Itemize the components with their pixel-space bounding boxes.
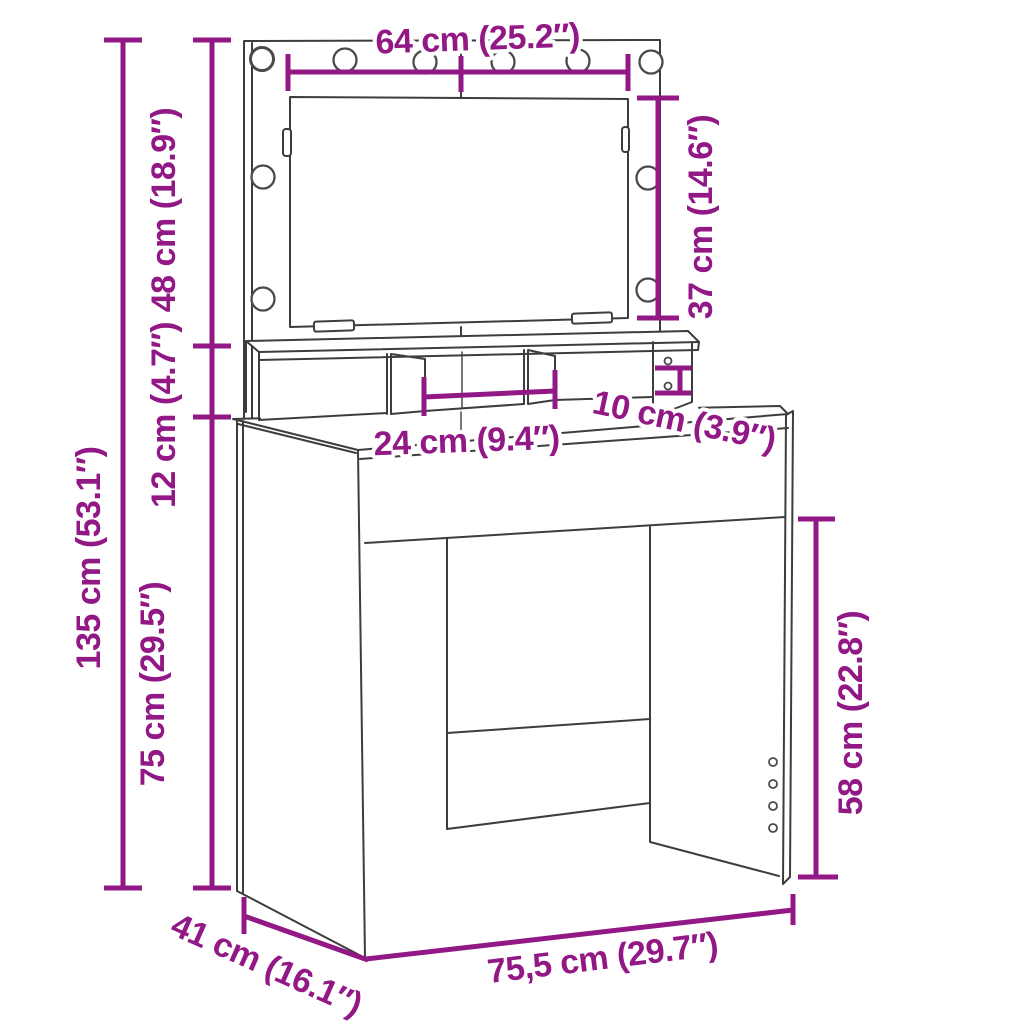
dim-compartment-width-label: 24 cm (9.4″) (373, 419, 560, 463)
shelf-top-board (246, 331, 699, 352)
dim-total-width-label: 75,5 cm (29.7″) (485, 925, 720, 991)
light-bulb-icon (251, 48, 274, 71)
dim-legroom-height-label: 58 cm (22.8″) (832, 611, 870, 815)
cam-hole-icon (769, 802, 777, 810)
leg-panel-holes (769, 758, 777, 832)
light-bulb-icon (252, 166, 275, 189)
dimension-drawing: 64 cm (25.2″) 37 cm (14.6″) 135 cm (53.1… (0, 0, 1024, 1024)
cam-hole-icon (665, 383, 672, 390)
shelf-cam-holes (665, 358, 672, 390)
table-right-panel (783, 411, 793, 884)
shelf-divider-left (387, 354, 425, 414)
dim-table-height-label: 75 cm (29.5″) (134, 582, 172, 786)
dim-mirror-glass-height-label: 37 cm (14.6″) (682, 115, 720, 319)
dim-niche-height-line (655, 368, 691, 393)
table-back-crossbar (447, 719, 650, 829)
cam-hole-icon (665, 358, 672, 365)
dim-mirror-panel-height-label: 48 cm (18.9″) (145, 108, 183, 312)
shelf-divider-right (524, 350, 555, 404)
mirror-clip-right (622, 127, 629, 152)
mirror-clip-bottom-right (572, 312, 612, 323)
cam-hole-icon (769, 758, 777, 766)
dim-mirror-width-label: 64 cm (25.2″) (375, 16, 581, 61)
cam-hole-icon (769, 824, 777, 832)
mirror-clip-left (283, 129, 291, 156)
table-opening-edges (447, 527, 779, 876)
light-bulb-icon (334, 49, 357, 72)
light-bulb-icon (640, 51, 663, 74)
table (233, 406, 793, 958)
dim-organizer-height-label: 12 cm (4.7″) (145, 322, 183, 508)
dim-total-height-label: 135 cm (53.1″) (70, 447, 108, 670)
table-left-panel (237, 420, 365, 958)
shelf-left-end (246, 341, 387, 420)
diagram-canvas: 64 cm (25.2″) 37 cm (14.6″) 135 cm (53.1… (0, 0, 1024, 1024)
dim-segmented-height-line (193, 40, 231, 888)
mirror-glass (290, 97, 628, 327)
cam-hole-icon (769, 780, 777, 788)
light-bulb-icon (252, 288, 275, 311)
table-apron (365, 517, 785, 543)
mirror-clip-bottom-left (314, 320, 354, 331)
